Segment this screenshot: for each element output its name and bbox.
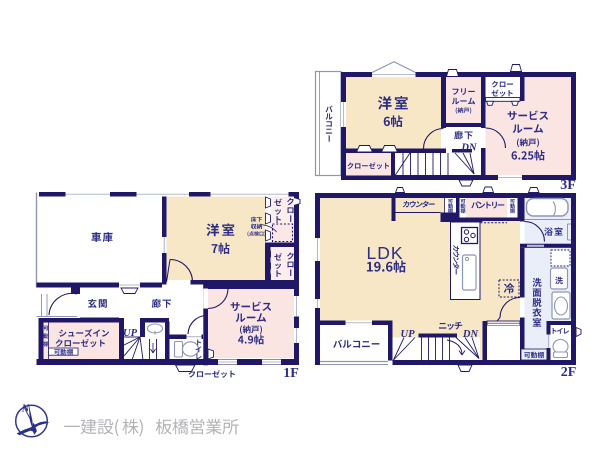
svg-text:3F: 3F	[560, 178, 576, 193]
svg-text:LDK: LDK	[366, 243, 403, 263]
svg-text:DN: DN	[460, 143, 477, 154]
svg-text:2F: 2F	[561, 365, 577, 380]
svg-text:1F: 1F	[283, 366, 299, 381]
